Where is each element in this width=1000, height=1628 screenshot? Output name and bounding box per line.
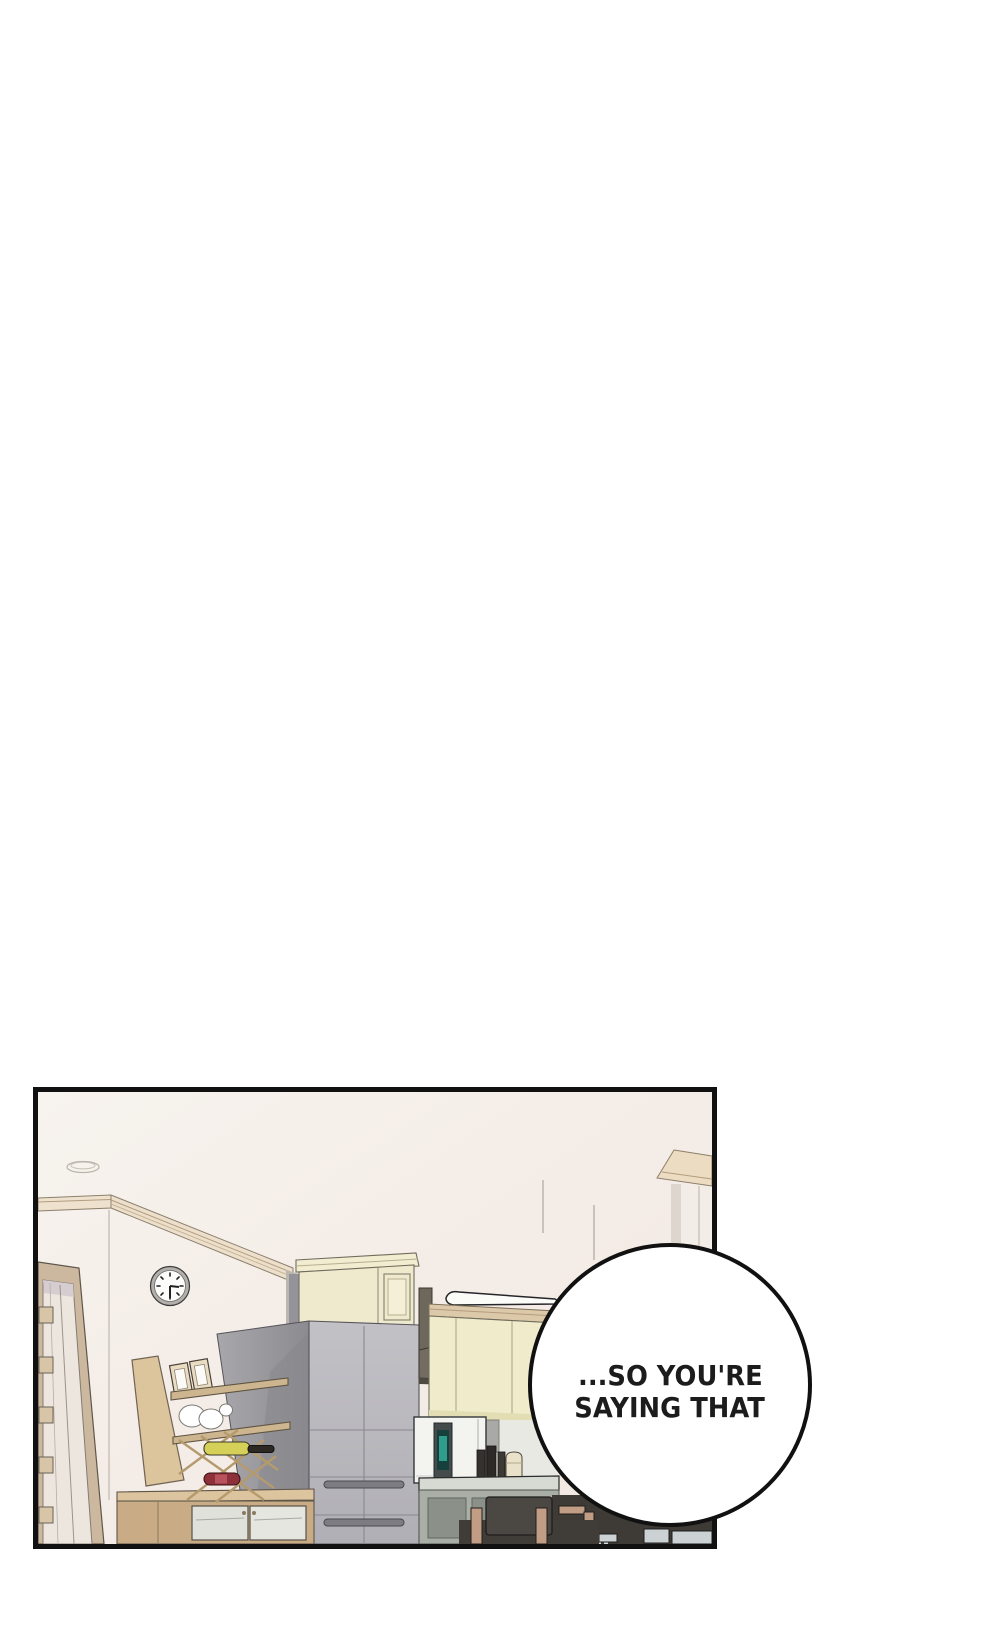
speech-line-1: ...SO YOU'RE — [578, 1360, 763, 1392]
ceiling-lamp — [67, 1162, 99, 1173]
comic-page: ...SO YOU'RE SAYING THAT — [0, 0, 1000, 1628]
microwave-oven — [414, 1417, 486, 1483]
speech-bubble-text: ...SO YOU'RE SAYING THAT — [520, 1235, 820, 1535]
sideboard-cabinet — [117, 1489, 314, 1544]
speech-line-2: SAYING THAT — [575, 1392, 766, 1424]
wall-clock — [151, 1267, 190, 1306]
above-fridge-cabinet — [289, 1253, 419, 1332]
